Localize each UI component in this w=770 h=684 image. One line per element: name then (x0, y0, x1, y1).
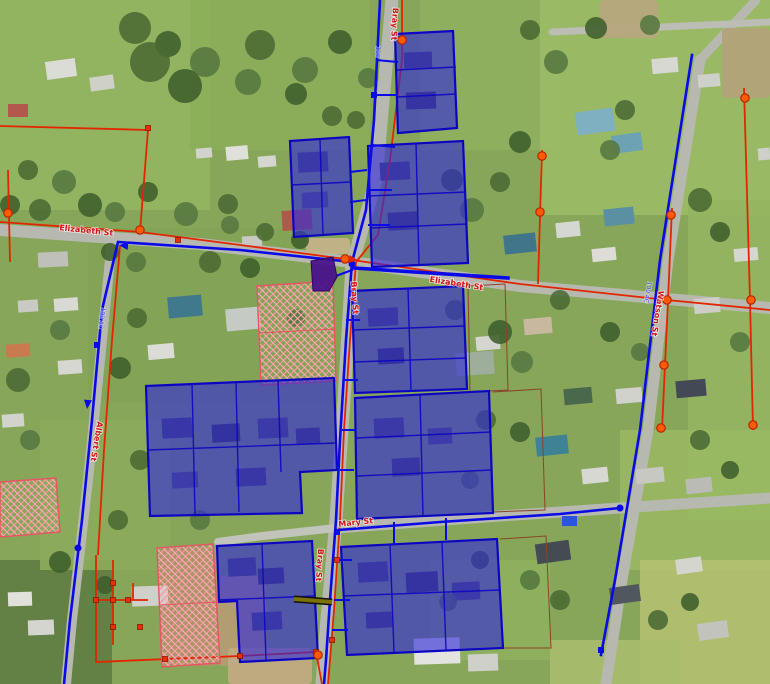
house-roof (8, 104, 28, 117)
tree-canopy (511, 351, 533, 373)
house-roof (757, 147, 770, 160)
tree-canopy (688, 188, 712, 212)
tree-canopy (199, 251, 221, 273)
hydrant-marker[interactable] (657, 424, 665, 432)
hydrant-marker[interactable] (341, 255, 349, 263)
tree-canopy (510, 422, 530, 442)
house-roof (6, 343, 31, 358)
tree-canopy (328, 30, 352, 54)
red-network-node[interactable] (111, 598, 116, 603)
house-roof (603, 206, 635, 226)
house-roof (581, 467, 608, 485)
house-roof (8, 592, 32, 607)
tree-canopy (126, 252, 146, 272)
red-network-node[interactable] (238, 654, 243, 659)
blue-network-node[interactable] (75, 545, 82, 552)
red-network-node[interactable] (111, 581, 116, 586)
house-roof (54, 297, 79, 312)
house-roof (18, 299, 39, 312)
tree-canopy (119, 12, 151, 44)
red-network-node[interactable] (330, 638, 335, 643)
hatched-parcel[interactable] (0, 478, 60, 537)
tree-canopy (78, 193, 102, 217)
house-roof (635, 467, 664, 485)
bare-ground (306, 238, 350, 254)
tree-canopy (347, 111, 365, 129)
tree-canopy (631, 343, 649, 361)
hydrant-marker[interactable] (536, 208, 544, 216)
tree-canopy (50, 320, 70, 340)
valve-marker[interactable] (598, 647, 604, 653)
pipe-label: 100 (374, 46, 381, 58)
hydrant-marker[interactable] (538, 152, 546, 160)
tree-canopy (710, 222, 730, 242)
red-network-node[interactable] (176, 238, 181, 243)
tree-canopy (130, 42, 170, 82)
tree-canopy (648, 610, 668, 630)
tree-canopy (550, 290, 570, 310)
hydrant-marker[interactable] (4, 209, 12, 217)
hydrant-marker[interactable] (667, 211, 675, 219)
tree-canopy (681, 593, 699, 611)
hydrant-marker[interactable] (136, 226, 144, 234)
tree-canopy (640, 15, 660, 35)
house-roof (563, 387, 592, 405)
hydrant-marker[interactable] (660, 361, 668, 369)
house-roof (523, 317, 552, 335)
house-roof (651, 57, 678, 74)
red-network-node[interactable] (94, 598, 99, 603)
house-roof (562, 516, 577, 526)
tree-canopy (690, 430, 710, 450)
house-roof (675, 379, 706, 399)
tree-canopy (509, 131, 531, 153)
tree-canopy (168, 69, 202, 103)
aerial-map-canvas: Elizabeth StElizabeth StBray StBray StBr… (0, 0, 770, 684)
house-roof (685, 477, 712, 495)
tree-canopy (108, 510, 128, 530)
sewered-parcel[interactable] (395, 31, 457, 133)
red-network-node[interactable] (163, 657, 168, 662)
hydrant-marker[interactable] (747, 296, 755, 304)
house-roof (28, 620, 55, 636)
tree-canopy (49, 551, 71, 573)
house-roof (697, 73, 720, 88)
tree-canopy (52, 170, 76, 194)
tree-canopy (6, 368, 30, 392)
tree-canopy (240, 258, 260, 278)
tree-canopy (174, 202, 198, 226)
house-roof (58, 359, 83, 375)
valve-marker[interactable] (94, 342, 100, 348)
tree-canopy (235, 69, 261, 95)
tree-canopy (600, 140, 620, 160)
tree-canopy (105, 202, 125, 222)
house-roof (147, 343, 174, 360)
house-roof (591, 247, 616, 262)
tree-canopy (721, 461, 739, 479)
hydrant-marker[interactable] (314, 651, 322, 659)
tree-canopy (138, 182, 158, 202)
house-roof (615, 387, 642, 404)
tree-canopy (109, 357, 131, 379)
red-network-node[interactable] (138, 625, 143, 630)
tree-canopy (20, 430, 40, 450)
tree-canopy (490, 172, 510, 192)
tree-canopy (218, 194, 238, 214)
tree-canopy (520, 570, 540, 590)
tree-canopy (520, 20, 540, 40)
house-roof (468, 653, 499, 671)
tree-canopy (292, 57, 318, 83)
house-roof (555, 221, 580, 238)
tree-canopy (322, 106, 342, 126)
hatched-parcel[interactable] (257, 281, 336, 385)
house-roof (2, 413, 25, 428)
house-roof (535, 434, 569, 456)
tree-canopy (221, 216, 239, 234)
tree-canopy (730, 332, 750, 352)
tree-canopy (285, 83, 307, 105)
tree-canopy (544, 50, 568, 74)
house-roof (225, 307, 261, 332)
bare-ground (722, 28, 770, 98)
house-roof (38, 251, 69, 268)
blue-network-node[interactable] (617, 505, 624, 512)
sewered-parcel[interactable] (355, 391, 493, 519)
house-roof (167, 295, 203, 319)
tree-canopy (585, 17, 607, 39)
house-roof (258, 155, 277, 168)
tree-canopy (127, 308, 147, 328)
tree-canopy (550, 590, 570, 610)
tree-canopy (29, 199, 51, 221)
hatched-parcel[interactable] (157, 544, 220, 667)
red-network-node[interactable] (146, 126, 151, 131)
house-roof (225, 145, 248, 161)
tree-canopy (615, 100, 635, 120)
tree-canopy (488, 320, 512, 344)
sewered-parcel[interactable] (341, 539, 503, 655)
tree-canopy (600, 322, 620, 342)
house-roof (503, 232, 537, 254)
valve-marker[interactable] (334, 529, 340, 535)
gis-map-view[interactable]: Elizabeth StElizabeth StBray StBray StBr… (0, 0, 770, 684)
street-label: Bray St (389, 8, 400, 41)
house-roof (196, 147, 213, 158)
red-network-node[interactable] (126, 598, 131, 603)
hydrant-marker[interactable] (749, 421, 757, 429)
tree-canopy (18, 160, 38, 180)
valve-marker[interactable] (371, 92, 377, 98)
house-roof (733, 247, 758, 262)
field-patch (190, 0, 370, 150)
hydrant-marker[interactable] (741, 94, 749, 102)
tree-canopy (256, 223, 274, 241)
red-network-node[interactable] (335, 558, 340, 563)
red-network-node[interactable] (111, 625, 116, 630)
tree-canopy (245, 30, 275, 60)
